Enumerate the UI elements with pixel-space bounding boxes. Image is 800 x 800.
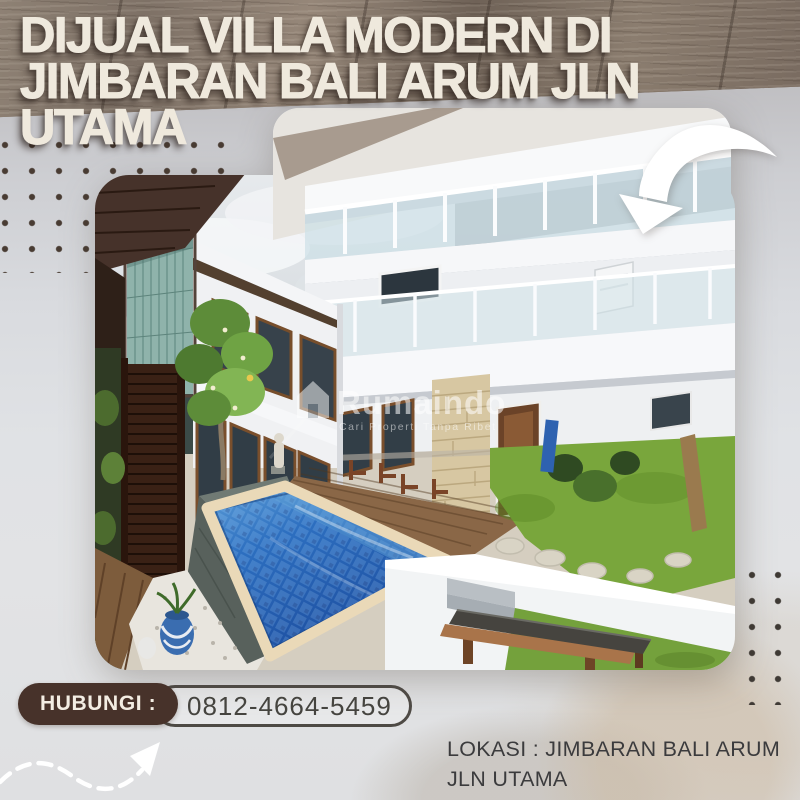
phone-number-pill: 0812-4664-5459 (154, 685, 412, 727)
title-line-1: DIJUAL VILLA MODERN DI (20, 12, 639, 58)
flyer-canvas: DIJUAL VILLA MODERN DI JIMBARAN BALI ARU… (0, 0, 800, 800)
location-text: LOKASI : JIMBARAN BALI ARUM JLN UTAMA (447, 734, 780, 794)
watermark-brand: Rumaindo (337, 384, 506, 421)
contact-label: HUBUNGI : (40, 692, 156, 716)
phone-number: 0812-4664-5459 (187, 691, 392, 722)
curved-arrow-icon (585, 116, 800, 261)
location-line-1: LOKASI : JIMBARAN BALI ARUM (447, 734, 780, 764)
dot-grid-right (748, 571, 800, 705)
dashed-arrow-icon (0, 736, 188, 798)
contact-label-badge: HUBUNGI : (18, 683, 178, 725)
watermark-tagline: Cari Properti Tanpa Ribet (339, 421, 497, 433)
location-line-2: JLN UTAMA (447, 764, 780, 794)
title-line-3: UTAMA (20, 104, 639, 150)
page-title: DIJUAL VILLA MODERN DI JIMBARAN BALI ARU… (20, 12, 639, 150)
title-line-2: JIMBARAN BALI ARUM JLN (20, 58, 639, 104)
